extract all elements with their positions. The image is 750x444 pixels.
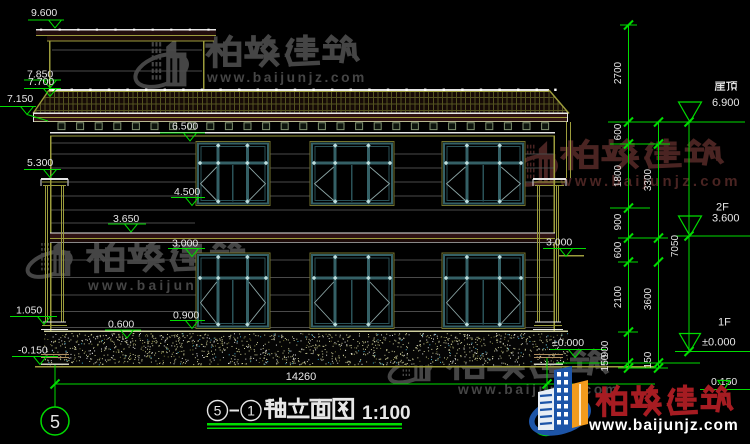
svg-text:600: 600 [613, 123, 624, 140]
svg-text:9.600: 9.600 [31, 7, 57, 19]
svg-text:6.900: 6.900 [712, 97, 740, 109]
svg-text:3.000: 3.000 [172, 238, 198, 250]
svg-text:1.050: 1.050 [16, 305, 42, 317]
svg-text:1: 1 [247, 403, 255, 419]
svg-text:5: 5 [214, 403, 222, 419]
svg-text:14260: 14260 [286, 371, 317, 383]
svg-text:www.baijunjz.com: www.baijunjz.com [588, 417, 739, 434]
svg-text:2100: 2100 [613, 285, 624, 308]
svg-text:±0.000: ±0.000 [552, 337, 584, 349]
svg-text:1F: 1F [718, 317, 731, 329]
svg-text:150: 150 [600, 354, 611, 371]
svg-text:4.500: 4.500 [174, 186, 200, 198]
svg-text:7.700: 7.700 [28, 76, 54, 88]
svg-text:150: 150 [643, 351, 654, 368]
svg-text:6.500: 6.500 [172, 121, 198, 133]
svg-text:7.150: 7.150 [7, 93, 33, 105]
svg-text:2700: 2700 [613, 61, 624, 84]
svg-text:±0.000: ±0.000 [702, 337, 736, 349]
svg-text:3600: 3600 [643, 287, 654, 310]
svg-text:0.600: 0.600 [108, 319, 134, 331]
svg-text:900: 900 [613, 213, 624, 230]
svg-text:5: 5 [50, 412, 60, 432]
svg-text:600: 600 [613, 241, 624, 258]
svg-text:3.600: 3.600 [712, 213, 740, 225]
svg-text:www.baijunjz.com: www.baijunjz.com [206, 70, 367, 85]
svg-text:1:100: 1:100 [362, 403, 411, 424]
svg-text:-0.150: -0.150 [18, 345, 48, 357]
svg-text:3300: 3300 [643, 168, 654, 191]
svg-text:0.150: 0.150 [711, 376, 737, 388]
svg-text:5.300: 5.300 [27, 157, 53, 169]
svg-text:1800: 1800 [613, 164, 624, 187]
svg-text:3.650: 3.650 [113, 213, 139, 225]
svg-text:3.000: 3.000 [546, 237, 572, 249]
svg-text:7050: 7050 [670, 234, 681, 257]
svg-text:0.900: 0.900 [173, 310, 199, 322]
